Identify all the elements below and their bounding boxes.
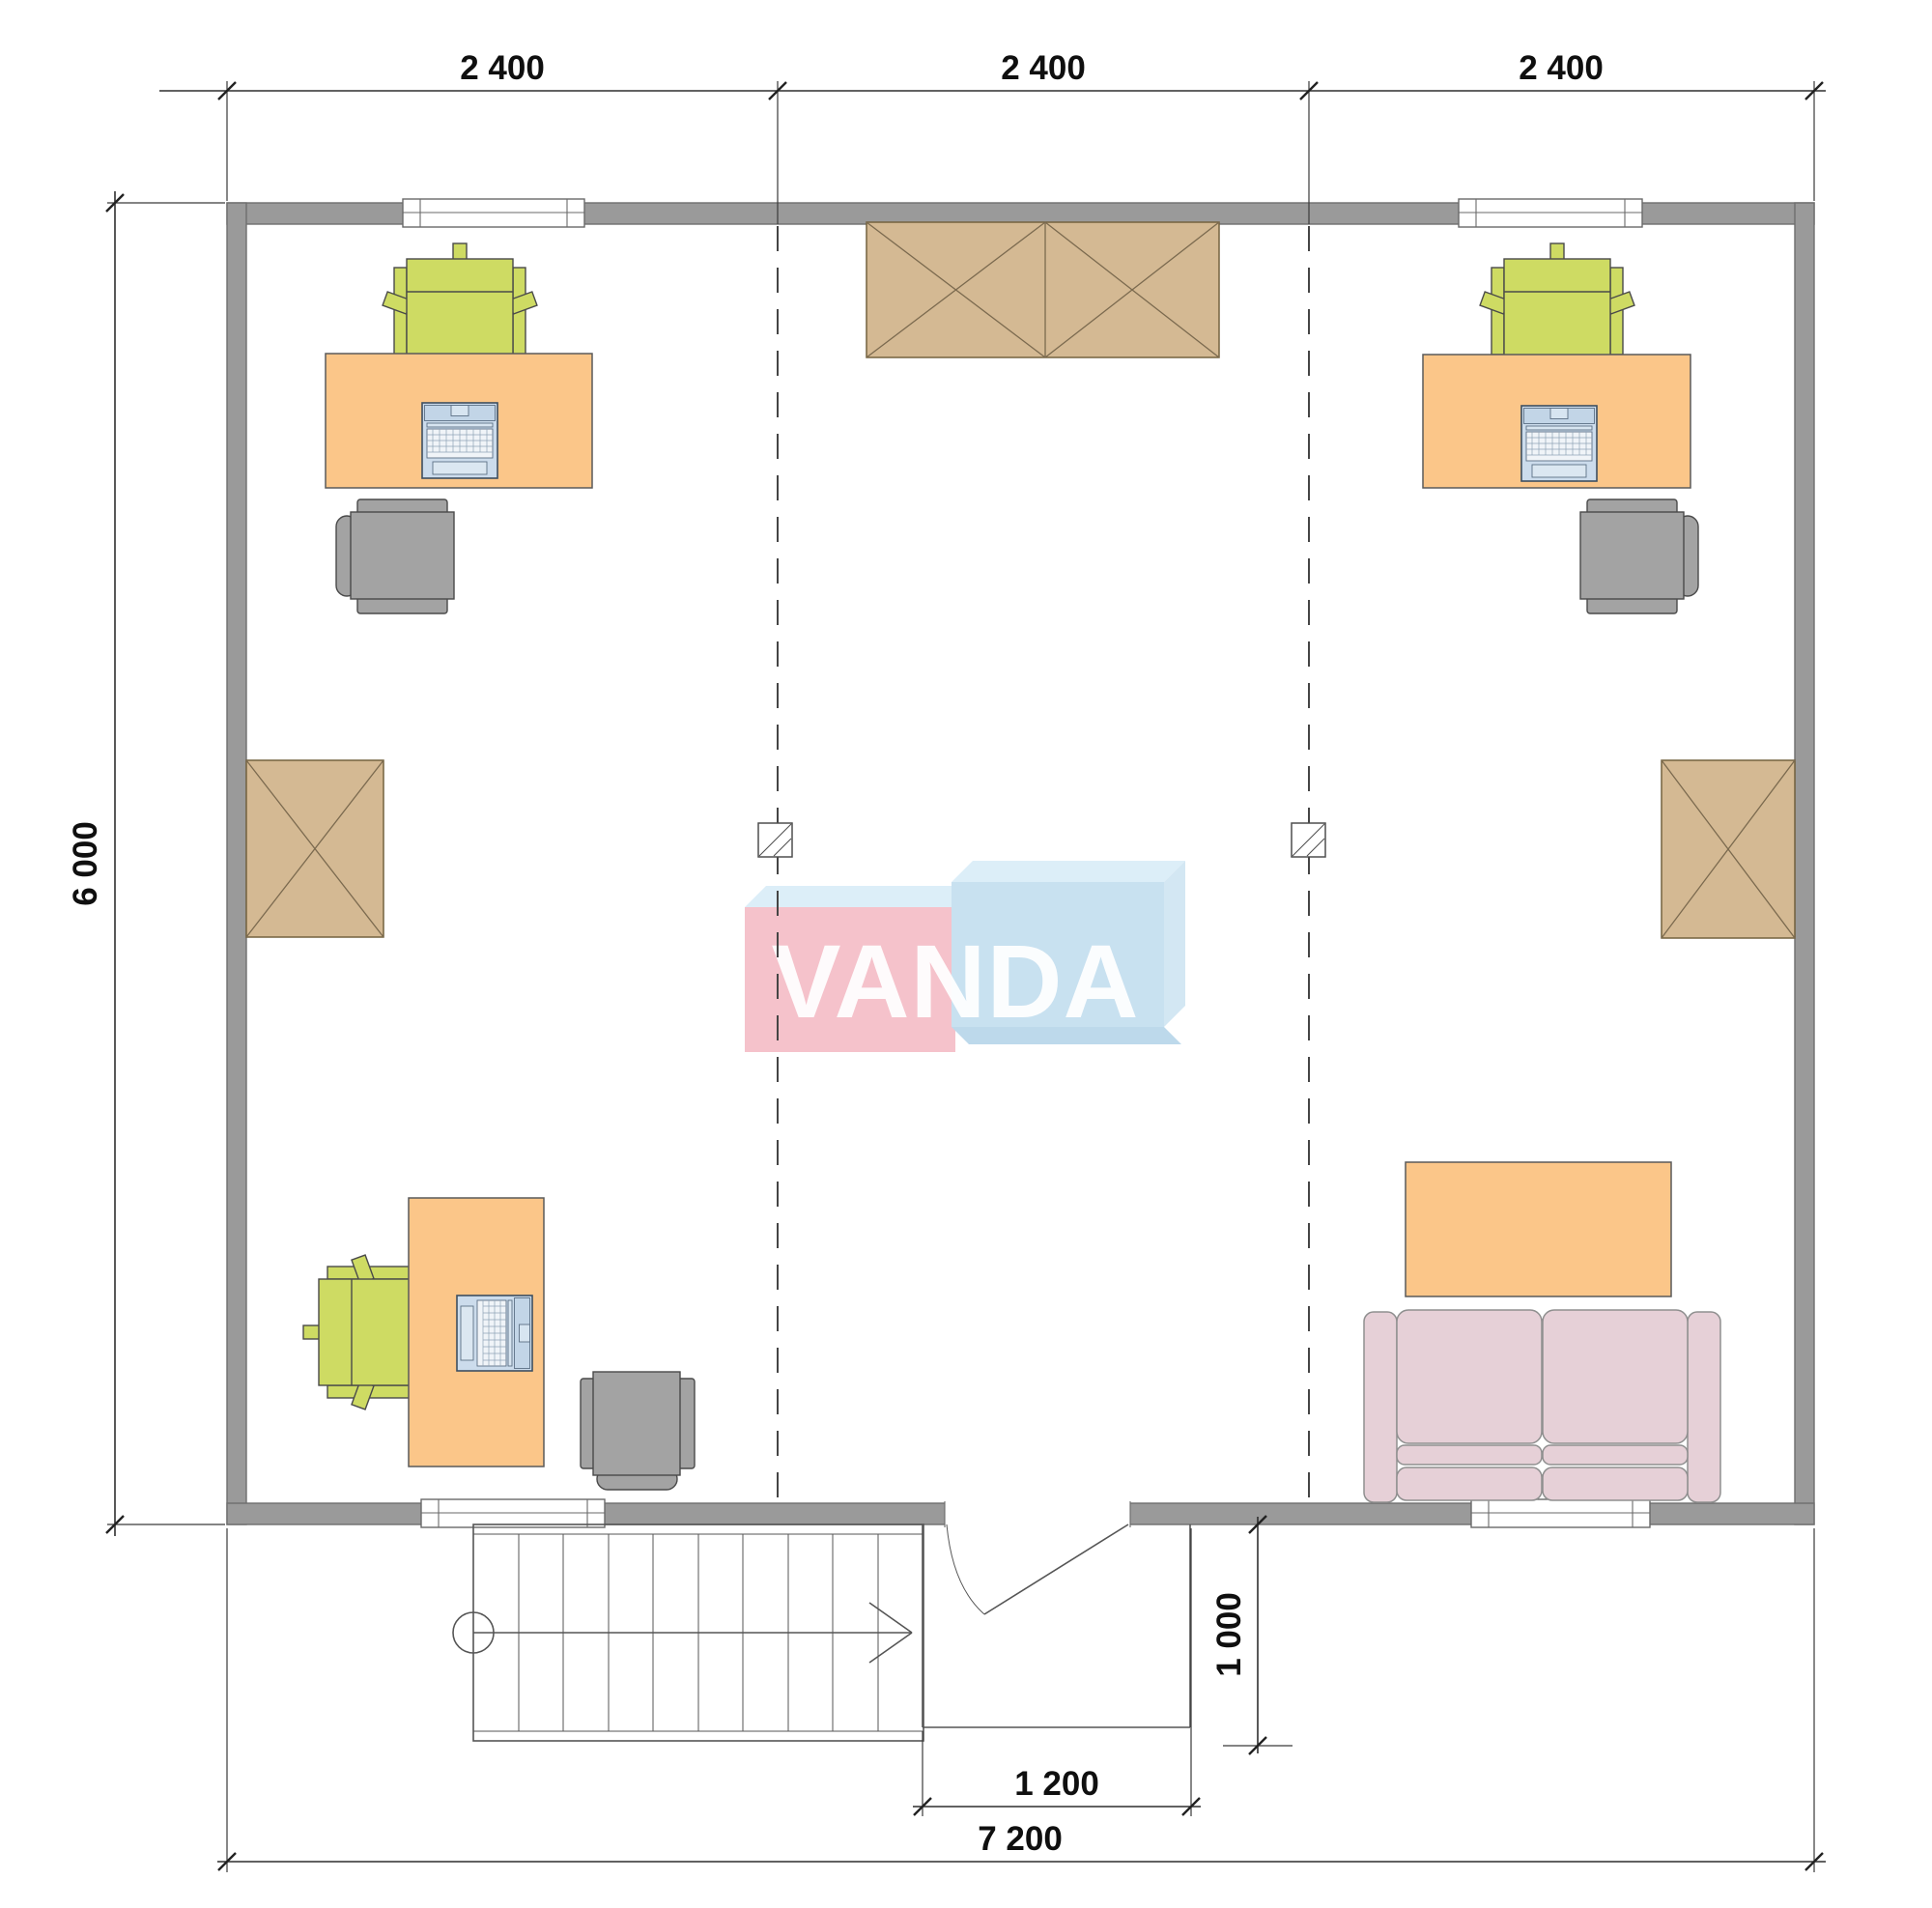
sofa-armrest-right	[1688, 1312, 1720, 1502]
dim-label-top-1: 2 400	[460, 49, 545, 87]
laptop-icon	[457, 1296, 532, 1371]
window-top-right	[1459, 199, 1642, 227]
stairs-arrow	[869, 1603, 912, 1633]
window-bottom-left	[421, 1499, 605, 1527]
dimension-top: 2 400 2 400 2 400	[159, 49, 1826, 224]
sofa-armrest-left	[1364, 1312, 1397, 1502]
office-chair-gray	[581, 1372, 695, 1490]
laptop-icon	[1521, 406, 1597, 481]
dimension-bottom: 7 200	[217, 1528, 1826, 1872]
watermark-logo: VANDA	[745, 861, 1185, 1052]
dim-label-width-total: 7 200	[978, 1820, 1063, 1858]
watermark-blue-top-bevel	[952, 861, 1185, 882]
cabinet-top-center	[867, 222, 1219, 357]
office-chair-green	[1480, 243, 1634, 356]
watermark-pink-bevel	[745, 886, 977, 907]
sofa-back-cushion	[1397, 1445, 1542, 1465]
column-marker-right	[1292, 823, 1325, 857]
watermark-text: VANDA	[772, 923, 1140, 1039]
sofa-seat-cushion	[1543, 1310, 1688, 1443]
door-swing	[947, 1524, 1128, 1614]
entry-porch	[923, 1524, 1190, 1727]
wall-left	[227, 203, 246, 1524]
dim-label-height: 6 000	[67, 821, 104, 906]
dim-label-entry-depth: 1 000	[1210, 1592, 1248, 1677]
window-bottom-right	[1471, 1499, 1650, 1527]
wall-right	[1795, 203, 1814, 1524]
sofa	[1364, 1310, 1720, 1502]
column-marker-left	[758, 823, 792, 857]
dim-label-top-3: 2 400	[1519, 49, 1604, 87]
workstation-top-right	[1423, 243, 1698, 613]
dim-label-top-2: 2 400	[1001, 49, 1086, 87]
cabinet-right	[1662, 760, 1795, 938]
sofa-back-cushion	[1397, 1467, 1542, 1500]
sofa-seat-cushion	[1397, 1310, 1542, 1443]
coffee-table	[1406, 1162, 1671, 1296]
cabinet-left	[246, 760, 384, 937]
sofa-back-cushion	[1543, 1467, 1688, 1500]
floor-plan-sheet: VANDA	[0, 0, 1932, 1908]
door-opening	[945, 1500, 1130, 1527]
dimension-left: 6 000	[67, 191, 225, 1536]
laptop-icon	[422, 403, 497, 478]
office-chair-gray	[336, 499, 454, 613]
office-chair-gray	[1580, 499, 1698, 613]
sofa-back-cushion	[1543, 1445, 1688, 1465]
dimension-entry-depth: 1 000	[1210, 1516, 1293, 1754]
office-chair-green	[383, 243, 537, 356]
window-top-left	[403, 199, 584, 227]
watermark-blue-right-bevel	[1164, 861, 1185, 1027]
office-chair-green	[303, 1255, 415, 1410]
workstation-bottom-left	[303, 1198, 695, 1490]
dim-label-entry-width: 1 200	[1014, 1765, 1099, 1803]
stairs	[453, 1524, 923, 1741]
workstation-top-left	[326, 243, 592, 613]
floor-plan-canvas: VANDA	[0, 0, 1932, 1908]
